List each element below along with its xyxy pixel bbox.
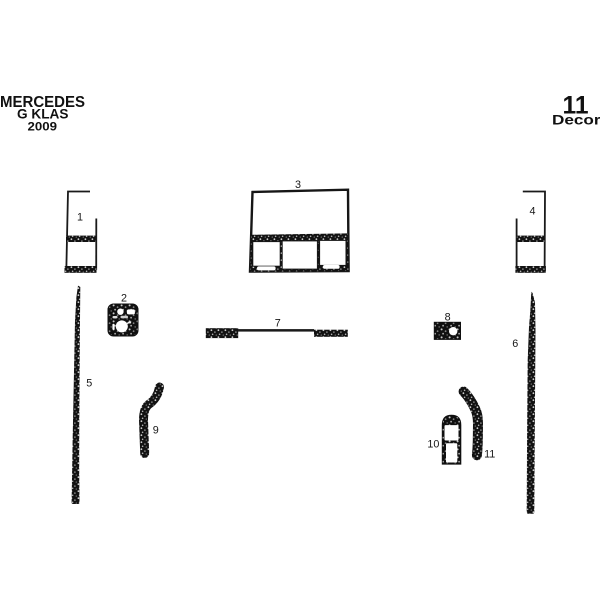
svg-text:4: 4 [529,206,535,218]
svg-text:11: 11 [484,449,495,461]
svg-text:5: 5 [86,377,92,389]
svg-text:2009: 2009 [28,121,58,133]
svg-text:10: 10 [427,439,439,451]
svg-text:7: 7 [275,317,281,329]
svg-text:9: 9 [153,425,159,437]
svg-text:2: 2 [121,293,127,305]
svg-text:6: 6 [512,338,518,350]
svg-text:Decor: Decor [552,111,600,127]
svg-text:G KLAS: G KLAS [17,107,69,122]
svg-text:1: 1 [77,212,83,224]
svg-text:3: 3 [295,179,301,191]
